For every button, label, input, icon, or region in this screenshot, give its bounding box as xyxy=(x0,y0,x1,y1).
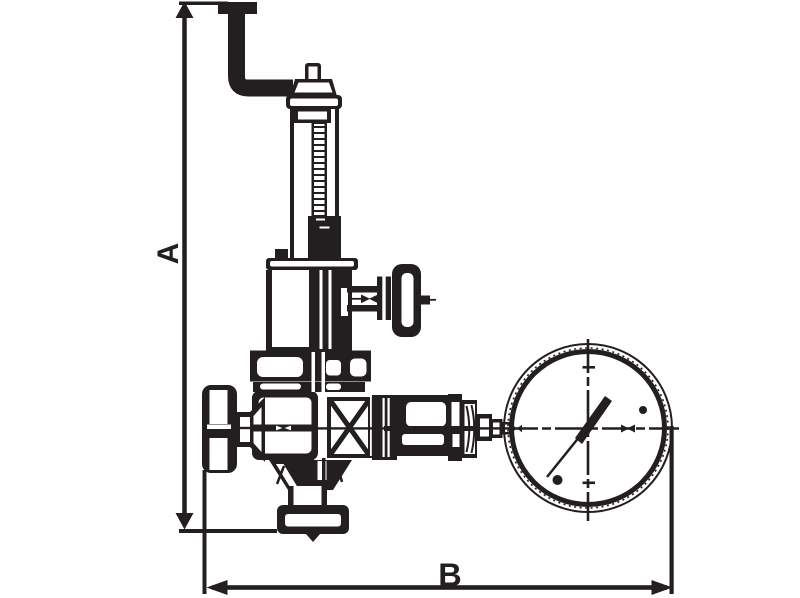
svg-text:A: A xyxy=(152,243,185,265)
svg-text:B: B xyxy=(438,557,461,593)
